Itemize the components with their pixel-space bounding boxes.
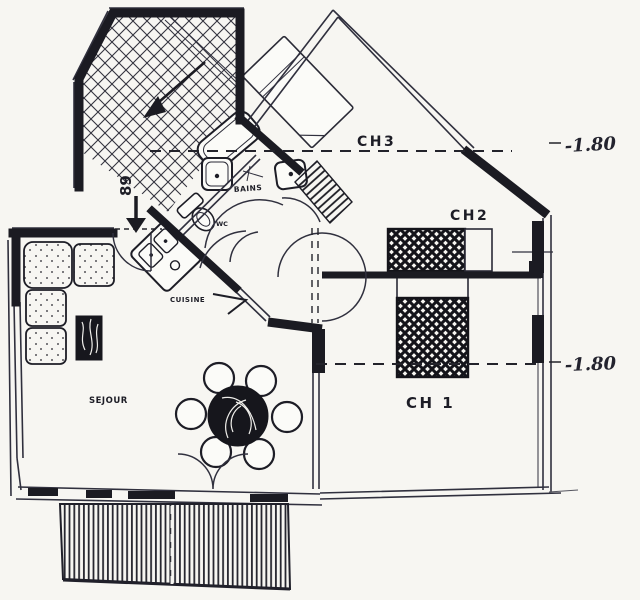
entry-number-label: 89 <box>117 175 135 196</box>
height-label-upper: -1.80 <box>564 133 617 157</box>
dining-chair <box>176 399 206 429</box>
dining-chair <box>272 402 302 432</box>
balcony-deck <box>60 504 290 589</box>
room-label-wc: WC <box>216 220 228 228</box>
room-label-sejour: SEJOUR <box>89 396 128 406</box>
room-label-ch3: CH3 <box>357 134 396 150</box>
room-label-cuisine: CUISINE <box>170 296 205 304</box>
room-label-ch1: CH 1 <box>406 394 455 412</box>
washbasin-1 <box>202 158 232 190</box>
side-table-wood <box>76 316 102 360</box>
wardrobe-ch1 <box>397 277 468 377</box>
room-label-ch2: CH2 <box>450 208 489 224</box>
floor-plan-page: 89 CH3 CH2 CH 1 SEJOUR CUISINE BAINS WC … <box>0 0 640 600</box>
height-label-lower: -1.80 <box>564 353 616 376</box>
wardrobe-ch2 <box>388 229 492 271</box>
dining-table <box>208 386 268 446</box>
floor-plan-svg: 89 CH3 CH2 CH 1 SEJOUR CUISINE BAINS WC … <box>0 0 640 600</box>
